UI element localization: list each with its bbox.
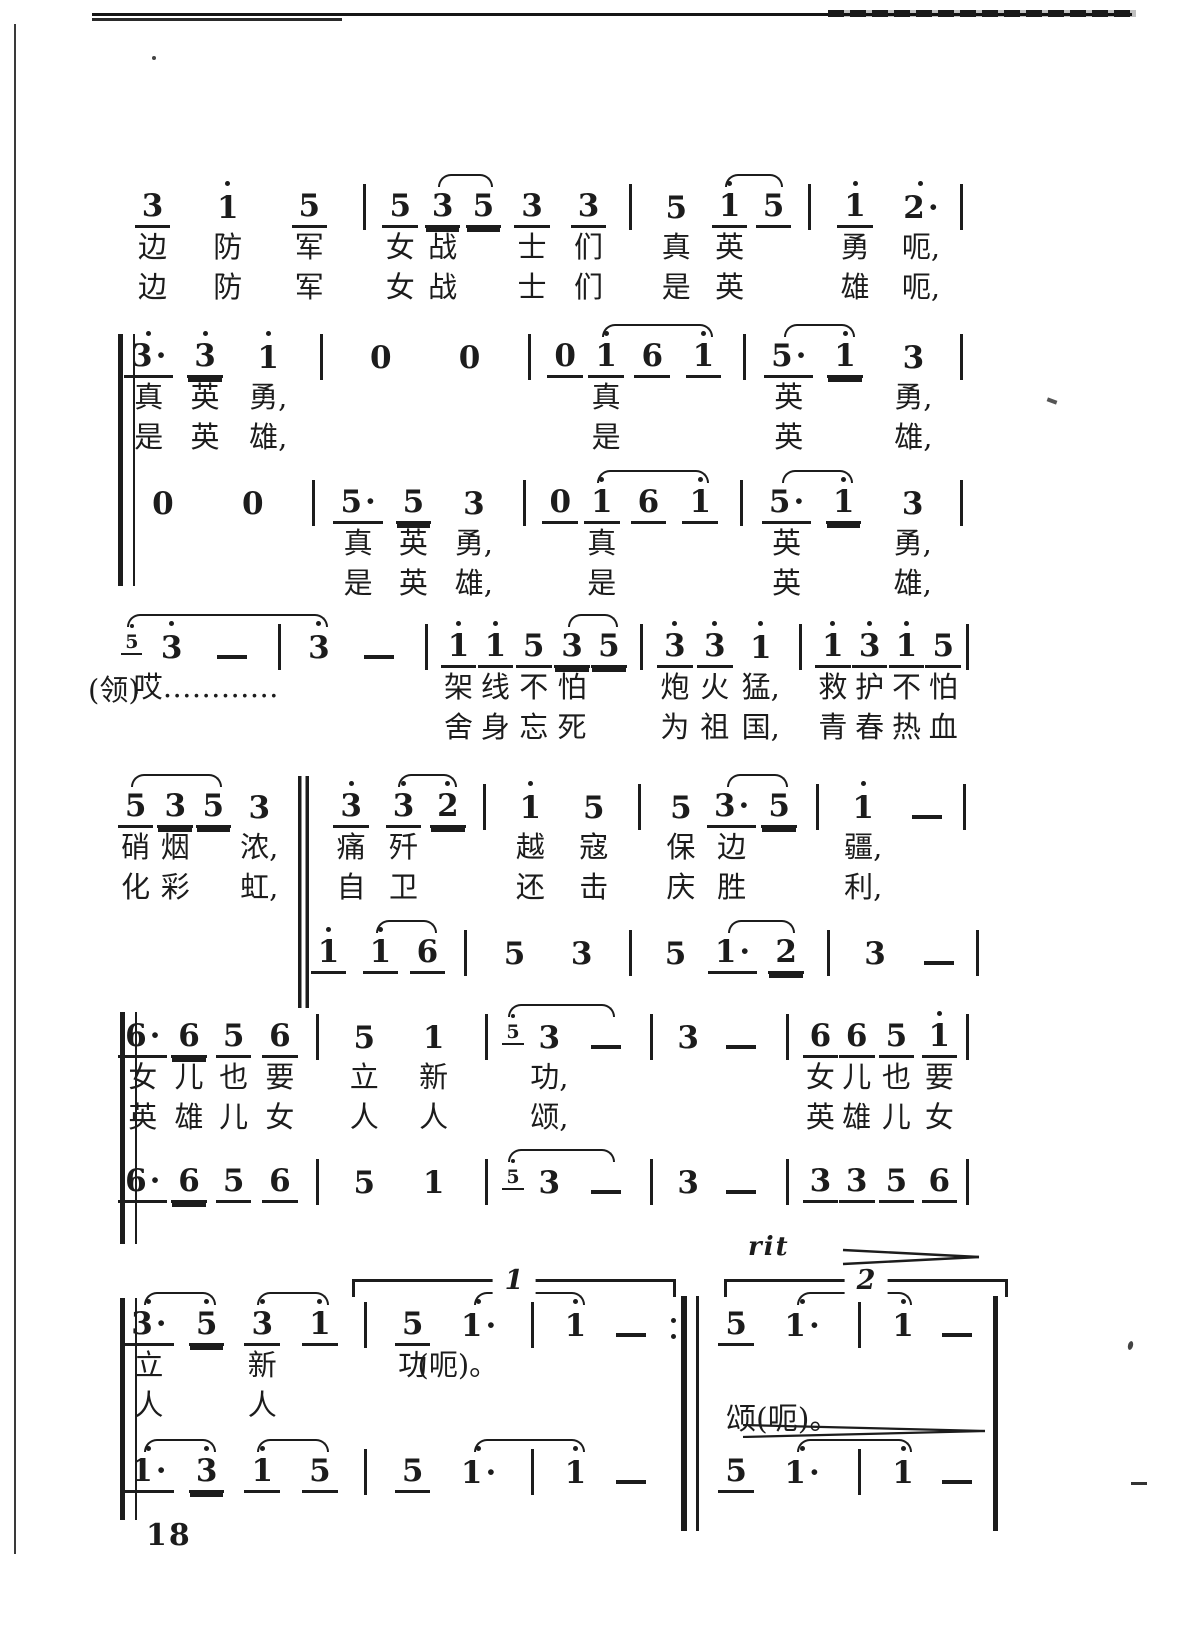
slur-tie: [144, 1292, 216, 1305]
lyric-zone: [726, 564, 757, 604]
barline-glyph: [483, 784, 486, 830]
lyric-zone: 英: [388, 564, 440, 604]
lyric-syllable: 雄: [842, 1098, 871, 1136]
glyph-zone: 3: [852, 628, 888, 668]
barline: [787, 612, 815, 748]
note: 5·真是: [329, 468, 388, 604]
note-glyph: 3·: [124, 1307, 173, 1346]
lyric-syllable: 英: [399, 524, 428, 562]
dash-glyph: [942, 1333, 972, 1337]
octave-dot: [712, 621, 717, 626]
note: 1: [678, 322, 729, 458]
lyric-zone: [895, 828, 958, 868]
note: 6要女: [257, 1002, 303, 1138]
lyric-zone: [839, 1386, 880, 1426]
lyric-zone: 雄,: [871, 564, 954, 604]
note-glyph: 5: [292, 189, 328, 228]
glyph-zone: 2: [430, 788, 466, 828]
lyric-syllable: 热: [892, 708, 921, 746]
lyric-zone: [954, 524, 968, 564]
barline-glyph: [278, 624, 281, 670]
note: 5怕血: [925, 612, 962, 748]
lyric-syllable: 勇,: [249, 378, 287, 416]
note: 3·边胜: [708, 772, 756, 908]
note-glyph: 3: [135, 189, 171, 228]
lyric-syllable: 真: [134, 378, 163, 416]
note: 5: [180, 1290, 234, 1426]
note-glyph: 0: [235, 486, 271, 522]
lyric-syllable: 人: [248, 1386, 277, 1424]
sheet-music-page: 3边边1防防5军军5女女3战战53士士3们们5真是1英英51勇雄2·呃,呃,3·…: [0, 0, 1180, 1632]
lyric-syllable: 彩: [161, 868, 190, 906]
note: 5: [463, 172, 504, 308]
lyric-zone: 哎…………: [146, 668, 198, 708]
lyric-zone: [803, 828, 832, 868]
barline: [795, 172, 823, 308]
barline-glyph: [740, 480, 743, 526]
note-glyph: 1: [837, 189, 873, 228]
barline-glyph: [523, 480, 526, 526]
dash: [907, 918, 971, 974]
lyric-syllable: 疆,: [844, 828, 882, 866]
note: 3边边: [118, 172, 187, 308]
lyric-syllable: 颂,: [530, 1098, 568, 1136]
barline: [451, 918, 481, 974]
note-glyph: 6: [922, 1164, 958, 1203]
lyric-syllable: 雄,: [894, 418, 932, 456]
note: 5: [645, 918, 705, 974]
lyric-zone: 真: [645, 228, 708, 268]
lyric-zone: [286, 868, 321, 908]
lyric-syllable: 利,: [844, 868, 882, 906]
lyric-zone: 胜: [708, 868, 756, 908]
note-glyph: 1·: [777, 1308, 826, 1344]
staff-line-3: 005·真是5英英3勇,雄,01真是615·英英13勇,雄,: [118, 468, 968, 604]
octave-dot-zone: [758, 612, 763, 628]
glyph-zone: 1: [558, 1306, 594, 1346]
barline: [954, 468, 968, 604]
lyric-zone: [625, 868, 654, 908]
dash: [926, 1437, 988, 1493]
note-glyph: 3: [564, 936, 600, 972]
glyph-zone: 1: [311, 934, 347, 974]
note: 5也儿: [875, 1002, 918, 1138]
lyric-zone: [426, 828, 470, 868]
glyph-zone: 5: [663, 788, 699, 828]
lyric-zone: 防: [187, 228, 269, 268]
dash-glyph: [726, 1190, 756, 1194]
lyric-syllable: 火: [700, 668, 729, 706]
staff-line-6: 1165351·23: [300, 918, 984, 974]
glyph-zone: 5: [502, 1018, 523, 1061]
glyph-zone: [726, 1163, 756, 1203]
dot: [671, 1318, 676, 1323]
lyric-syllable: 边: [138, 268, 167, 306]
lyric-syllable: 雄: [175, 1098, 204, 1136]
note: 1防防: [187, 172, 269, 308]
glyph-zone: 1: [478, 628, 514, 668]
note: 1救青: [814, 612, 851, 748]
measure-row: 005·真是5英英3勇,雄,01真是615·英英13勇,雄,: [118, 468, 968, 604]
lyric-zone: 女: [118, 1058, 168, 1098]
glyph-zone: 1: [837, 188, 873, 228]
lyric-zone: [545, 378, 586, 418]
lyric-syllable: 英: [715, 268, 744, 306]
note: 3勇,雄,: [871, 468, 954, 604]
lyric-zone: 身: [477, 708, 514, 748]
lyric-syllable: 功,: [530, 1058, 568, 1096]
lyric-syllable: 儿: [219, 1098, 248, 1136]
glyph-zone: [671, 1306, 699, 1346]
note-glyph: 5: [718, 1454, 754, 1493]
glyph-zone: [912, 788, 942, 828]
lyric-syllable: 战: [428, 228, 457, 266]
lyric-syllable: 人: [134, 1386, 163, 1424]
barline: [971, 918, 984, 974]
scan-edge-top-dashes: [828, 10, 1136, 17]
lyric-syllable: 英: [399, 564, 428, 602]
dot: [682, 1465, 687, 1470]
barline: [617, 172, 645, 308]
lyric-zone: [622, 524, 674, 564]
lyric-zone: [926, 1346, 988, 1386]
note-glyph: 5·: [333, 485, 382, 524]
glyph-zone: [616, 1453, 646, 1493]
lyric-syllable: 不: [519, 668, 548, 706]
lyric-zone: [293, 668, 345, 708]
glyph-zone: [483, 788, 486, 828]
lyric-zone: 硝: [115, 828, 156, 868]
octave-dot: [266, 331, 271, 336]
lyric-zone: [298, 564, 329, 604]
lyric-syllable: 女: [128, 1058, 157, 1096]
glyph-zone: 5: [516, 628, 552, 668]
lyric-zone: [962, 708, 974, 748]
note-glyph: 5: [396, 485, 432, 524]
lyric-zone: [988, 1386, 1004, 1426]
glyph-zone: [963, 788, 966, 828]
lyric-zone: [265, 668, 293, 708]
note-glyph: 2: [768, 935, 804, 974]
dash: [600, 1290, 662, 1426]
glyph-zone: 3: [514, 188, 550, 228]
glyph-zone: [364, 628, 394, 668]
lyric-zone: [574, 1058, 637, 1098]
note: 1: [396, 1147, 472, 1203]
glyph-zone: [786, 1163, 789, 1203]
dash-glyph: [912, 815, 942, 819]
lyric-zone: [755, 868, 803, 908]
lyric-zone: [349, 1386, 382, 1426]
note: 5: [707, 1437, 765, 1493]
lyric-syllable: 血: [929, 708, 958, 746]
glyph-zone: 5: [382, 188, 418, 228]
barline-glyph: [638, 784, 641, 830]
glyph-zone: [312, 484, 315, 524]
lyric-syllable: 卫: [389, 868, 418, 906]
lyric-zone: [350, 268, 378, 308]
dash: [600, 1437, 662, 1493]
note: 3: [667, 1147, 710, 1203]
note: 1: [551, 1290, 600, 1426]
lyric-zone: 雄,: [439, 564, 508, 604]
slur-tie: [131, 774, 223, 787]
octave-dot-zone: [712, 612, 717, 628]
note-glyph: 3: [532, 1020, 568, 1056]
lyric-zone: [463, 268, 504, 308]
lyric-zone: [306, 378, 337, 418]
note-glyph: 5: [189, 1307, 225, 1346]
lyric-syllable: 击: [579, 868, 608, 906]
lyric-zone: [662, 1346, 707, 1386]
lyric-syllable: 英: [191, 418, 220, 456]
glyph-zone: 5: [216, 1018, 252, 1058]
lyric-syllable: 英: [772, 524, 801, 562]
lyric-syllable: 勇: [841, 228, 870, 266]
glyph-zone: 3: [564, 934, 600, 974]
barline: [303, 1002, 333, 1138]
lyric-zone: [303, 1058, 333, 1098]
glyph-zone: 6: [839, 1018, 875, 1058]
dash-glyph: [924, 961, 954, 965]
octave-dot-zone: [326, 918, 331, 934]
lyric-zone: [755, 828, 803, 868]
slur-tie: [257, 1439, 329, 1452]
note: 6: [622, 468, 674, 604]
scan-edge-top-smudge: [92, 18, 342, 21]
barline-glyph: [364, 1302, 367, 1348]
lyric-syllable: 胜: [717, 868, 746, 906]
note-glyph: 1: [827, 339, 863, 378]
lyric-syllable: 防: [213, 228, 242, 266]
lyric-zone: [540, 524, 581, 564]
glyph-zone: [316, 1163, 319, 1203]
lyric-zone: [795, 268, 823, 308]
glyph-zone: [942, 1453, 972, 1493]
note: 5: [755, 772, 803, 908]
lyric-zone: [710, 1058, 773, 1098]
lyric-syllable: 虹,: [240, 868, 278, 906]
note: 6: [257, 1147, 303, 1203]
lyric-zone: [961, 1058, 974, 1098]
lyric-zone: 真: [329, 524, 388, 564]
lyric-syllable: 呃,: [902, 268, 940, 306]
note-glyph: 6: [171, 1164, 207, 1203]
note-glyph: 5·: [762, 485, 811, 524]
lyric-zone: [726, 524, 757, 564]
lyric-zone: [349, 1346, 382, 1386]
barline: [726, 468, 757, 604]
note-glyph: 1: [302, 1307, 338, 1346]
glyph-zone: 1: [845, 788, 881, 828]
lyric-syllable: 护: [855, 668, 884, 706]
dash-glyph: [591, 1045, 621, 1049]
octave-dot-zone: [672, 612, 677, 628]
note: 2·呃,呃,: [886, 172, 955, 308]
glyph-zone: [638, 788, 641, 828]
lyric-syllable: 化: [121, 868, 150, 906]
lyric-syllable: 祖: [700, 708, 729, 746]
glyph-zone: [816, 788, 819, 828]
lyric-zone: [545, 418, 586, 458]
lyric-syllable: 雄,: [894, 564, 932, 602]
glyph-zone: 1: [513, 788, 549, 828]
note-glyph: 1: [441, 629, 477, 668]
barline-glyph: [960, 334, 963, 380]
lyric-zone: [118, 524, 208, 564]
lyric-syllable: 英: [191, 378, 220, 416]
lyric-syllable: 怕: [558, 668, 587, 706]
barline: [637, 1002, 667, 1138]
note: 3功,颂,: [525, 1002, 575, 1138]
note-glyph: 3: [514, 189, 550, 228]
glyph-zone: 1: [712, 188, 748, 228]
note-glyph: 5: [395, 1454, 431, 1493]
note: 1不热: [888, 612, 925, 748]
dash-glyph: [942, 1480, 972, 1484]
barline-glyph: [816, 784, 819, 830]
glyph-zone: [464, 934, 467, 974]
lyric-zone: 勇,: [871, 524, 954, 564]
glyph-zone: [827, 934, 830, 974]
glyph-zone: 5: [396, 484, 432, 524]
lyric-zone: 死: [554, 708, 591, 748]
glyph-zone: 1: [885, 1306, 921, 1346]
lyric-syllable: (呃)。: [418, 1346, 499, 1384]
note-glyph: 5: [382, 189, 418, 228]
note-glyph: 5: [216, 1164, 252, 1203]
lyric-zone: [118, 564, 208, 604]
note-glyph: 6: [410, 935, 446, 974]
glyph-zone: [924, 934, 954, 974]
lyric-zone: [787, 708, 815, 748]
note: 5: [590, 612, 627, 748]
note-glyph: 1: [513, 790, 549, 826]
lyric-syllable: 勇,: [455, 524, 493, 562]
note: 1: [816, 468, 871, 604]
lyric-zone: 边: [708, 828, 756, 868]
glyph-zone: [278, 628, 281, 668]
lyric-zone: [637, 1098, 667, 1138]
glyph-zone: 1: [743, 628, 779, 668]
octave-dot-zone: [493, 612, 498, 628]
barline: [615, 918, 645, 974]
lyric-zone: [954, 418, 968, 458]
note: 3炮为: [655, 612, 695, 748]
glyph-zone: 5: [121, 628, 142, 671]
octave-dot: [528, 781, 533, 786]
barline-glyph: [743, 334, 746, 380]
lyric-zone: [303, 1098, 333, 1138]
glyph-zone: [960, 188, 963, 228]
note-glyph: 3: [187, 339, 223, 378]
glyph-zone: [320, 338, 323, 378]
note: 3烟彩: [156, 772, 194, 908]
barline-glyph: [363, 184, 366, 230]
glyph-zone: 5: [302, 1453, 338, 1493]
note-glyph: 3: [333, 789, 369, 828]
slur-tie: [508, 1004, 615, 1017]
note-glyph: 6·: [118, 1164, 167, 1203]
glyph-zone: 3·: [124, 338, 173, 378]
note-glyph: 5: [879, 1164, 915, 1203]
barline-glyph: [966, 1159, 969, 1205]
glyph-zone: 3: [857, 934, 893, 974]
lyric-syllable: 人: [419, 1098, 448, 1136]
lyric-zone: 呃,: [886, 268, 955, 308]
repeat-sign: [662, 1290, 707, 1426]
note-glyph: 3: [386, 789, 422, 828]
lyric-zone: 英: [179, 418, 230, 458]
lyric-zone: [590, 668, 627, 708]
lyric-zone: 勇: [824, 228, 887, 268]
lyric-zone: [958, 828, 971, 868]
note: 5: [333, 1147, 396, 1203]
barline: [413, 612, 441, 748]
note-glyph: 5: [196, 789, 232, 828]
note-glyph: 3: [154, 630, 190, 666]
lyric-zone: [336, 418, 425, 458]
glyph-zone: 5: [395, 1306, 431, 1346]
barline: [349, 1290, 382, 1426]
note-glyph: 3: [571, 189, 607, 228]
note-glyph: 6: [171, 1019, 207, 1058]
lyric-zone: [816, 524, 871, 564]
note: 6女英: [802, 1002, 838, 1138]
octave-dot-zone: [904, 612, 909, 628]
note-glyph: 0: [547, 339, 583, 378]
note: 5英英: [388, 468, 440, 604]
glyph-zone: 3: [670, 1163, 706, 1203]
lyric-zone: 是: [329, 564, 388, 604]
note-glyph: 5: [516, 629, 552, 668]
note-glyph: 5: [663, 790, 699, 826]
note-glyph: 5: [658, 936, 694, 972]
lyric-zone: 儿: [875, 1098, 918, 1138]
glyph-zone: [217, 628, 247, 668]
lyric-syllable: (领): [88, 671, 140, 709]
note-glyph: 5: [466, 189, 502, 228]
glyph-zone: [629, 934, 632, 974]
barline-glyph: [960, 480, 963, 526]
octave-dot: [493, 621, 498, 626]
note: 3护春: [851, 612, 888, 748]
lyric-syllable: 英: [772, 564, 801, 602]
slur-tie: [376, 920, 437, 933]
lyric-zone: 英: [760, 378, 818, 418]
lyric-zone: [345, 708, 413, 748]
lyric-zone: [463, 228, 504, 268]
glyph-zone: [316, 1018, 319, 1058]
note: 1疆,利,: [832, 772, 895, 908]
note-glyph: 1·: [777, 1455, 826, 1491]
note-glyph: 3: [189, 1454, 225, 1493]
lyric-syllable: 儿: [882, 1098, 911, 1136]
rest: 0: [425, 322, 514, 458]
lyric-zone: [678, 378, 729, 418]
lyric-syllable: 英: [774, 378, 803, 416]
note: 1英英: [708, 172, 752, 308]
lyric-syllable: 炮: [660, 668, 689, 706]
barline: [306, 322, 337, 458]
glyph-zone: 3·: [707, 788, 756, 828]
note-glyph: 3: [670, 1020, 706, 1056]
dot: [682, 1481, 687, 1486]
lyric-syllable: 猛,: [742, 668, 780, 706]
lyric-zone: 浓,: [232, 828, 286, 868]
lyric-zone: 儿: [839, 1058, 875, 1098]
note-glyph: 6: [262, 1164, 298, 1203]
